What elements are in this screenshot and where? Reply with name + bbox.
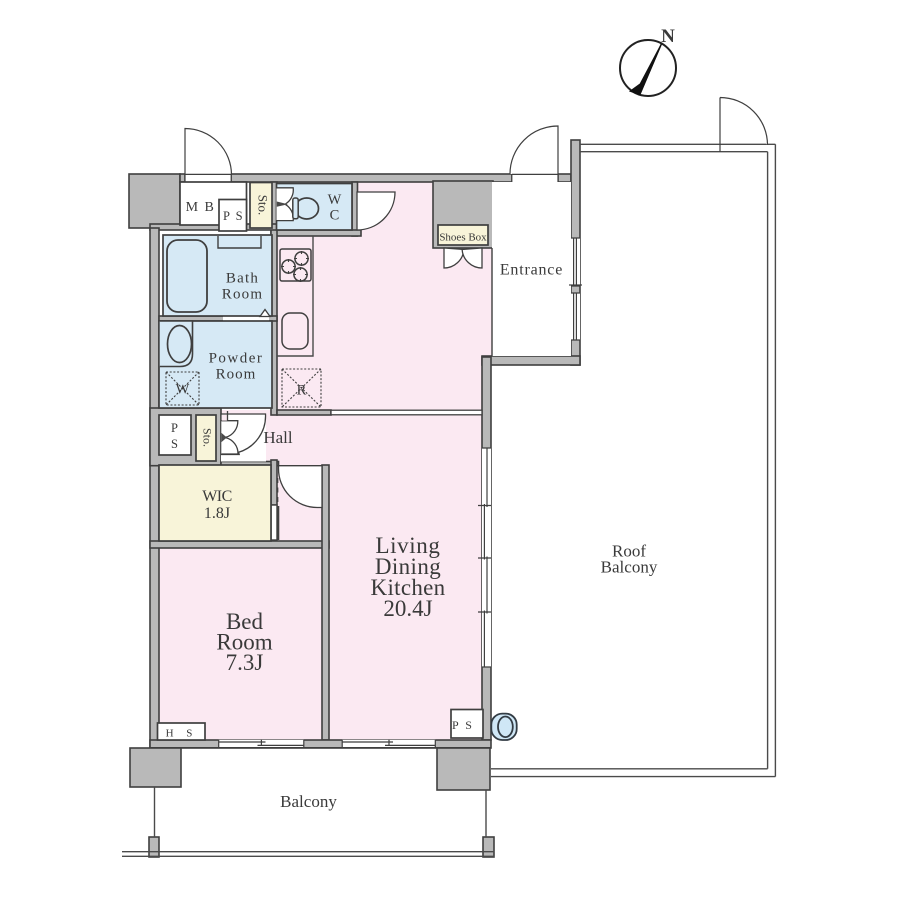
svg-text:C: C bbox=[330, 208, 340, 224]
svg-text:Sto.: Sto. bbox=[256, 195, 271, 216]
svg-text:P: P bbox=[171, 421, 178, 435]
svg-text:WIC: WIC bbox=[202, 488, 232, 505]
svg-text:S: S bbox=[171, 437, 178, 451]
svg-text:P S: P S bbox=[452, 718, 474, 732]
svg-text:Shoes Box: Shoes Box bbox=[439, 232, 487, 244]
svg-text:W: W bbox=[176, 382, 190, 398]
svg-text:Bath: Bath bbox=[226, 271, 259, 287]
svg-text:Balcony: Balcony bbox=[601, 558, 658, 577]
svg-text:P S: P S bbox=[223, 209, 244, 223]
svg-text:R: R bbox=[297, 383, 307, 399]
svg-text:Hall: Hall bbox=[263, 428, 293, 447]
svg-text:Balcony: Balcony bbox=[280, 792, 337, 811]
svg-text:Entrance: Entrance bbox=[500, 262, 563, 279]
svg-text:1.8J: 1.8J bbox=[204, 505, 230, 522]
svg-text:Sto.: Sto. bbox=[201, 428, 215, 447]
svg-text:Powder: Powder bbox=[209, 351, 264, 367]
svg-text:H S: H S bbox=[166, 728, 198, 740]
svg-text:W: W bbox=[328, 192, 342, 208]
svg-text:Room: Room bbox=[222, 287, 263, 303]
svg-text:7.3J: 7.3J bbox=[226, 650, 264, 675]
svg-text:M B: M B bbox=[186, 200, 216, 215]
svg-text:Room: Room bbox=[216, 367, 257, 383]
svg-text:N: N bbox=[661, 26, 675, 47]
svg-text:20.4J: 20.4J bbox=[383, 596, 432, 621]
